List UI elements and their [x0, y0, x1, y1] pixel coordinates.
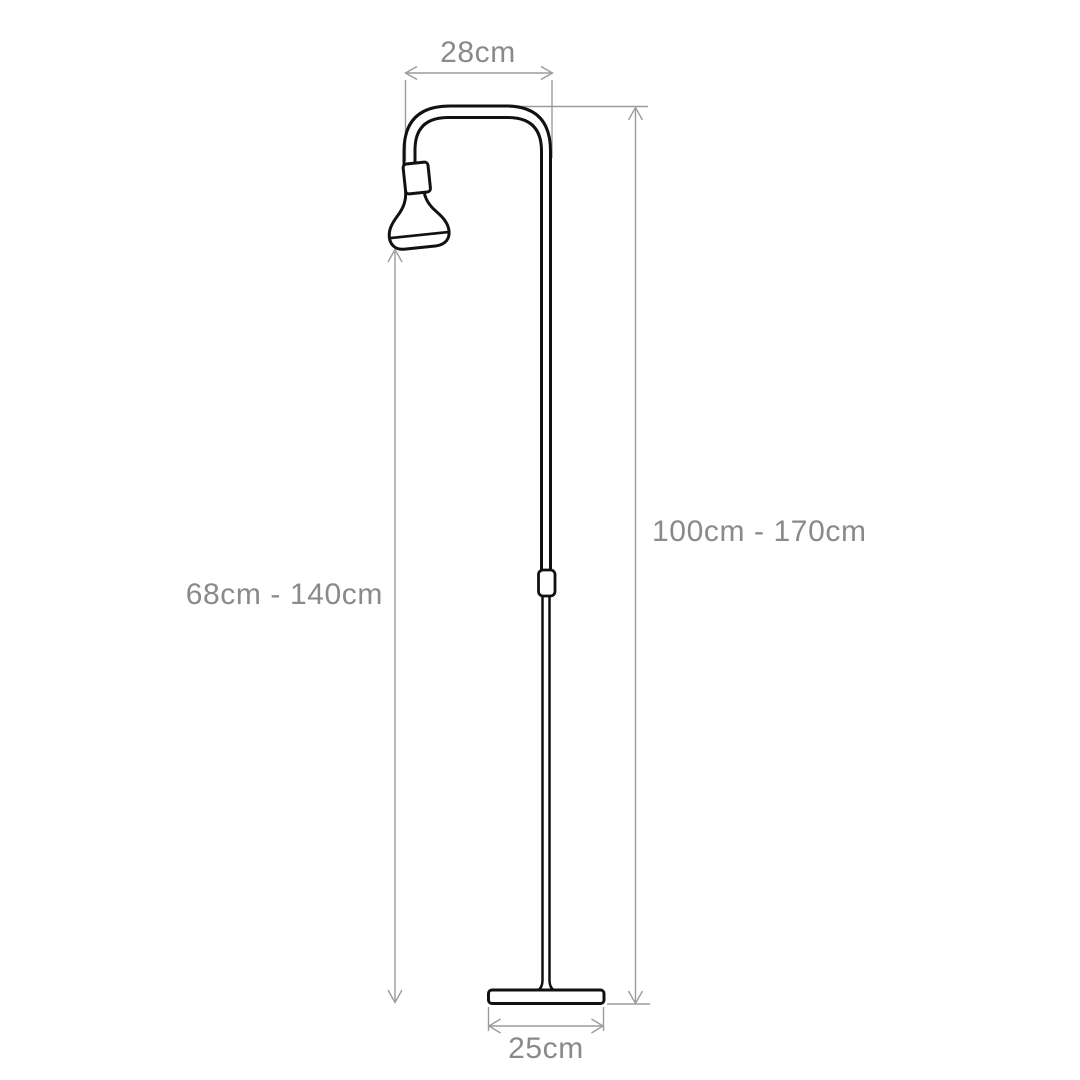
- arm-width-label: 28cm: [440, 36, 516, 69]
- lamp-drawing: [382, 106, 604, 1004]
- dim-total-height: 100cm - 170cm: [468, 107, 867, 1005]
- lower-pole-left-edge: [538, 596, 543, 991]
- dim-arm-width: 28cm: [406, 36, 553, 161]
- base-width-label: 25cm: [508, 1032, 584, 1065]
- lower-pole-right-edge: [550, 596, 555, 991]
- diagram-svg: 28cm 100cm - 170cm 68cm - 140cm: [0, 0, 1080, 1080]
- reflector-bulb: [385, 187, 451, 250]
- lamp-dimension-diagram: 28cm 100cm - 170cm 68cm - 140cm: [0, 0, 1080, 1080]
- dim-base-width: 25cm: [489, 1007, 604, 1065]
- arm-inner-edge: [415, 118, 542, 573]
- total-height-label: 100cm - 170cm: [652, 515, 867, 548]
- lamp-socket: [403, 162, 431, 194]
- head-height-label: 68cm - 140cm: [186, 578, 383, 611]
- lamp-head: [382, 160, 451, 250]
- pole-joint: [539, 570, 556, 596]
- base-plate: [489, 990, 605, 1004]
- dim-head-height: 68cm - 140cm: [186, 250, 402, 1003]
